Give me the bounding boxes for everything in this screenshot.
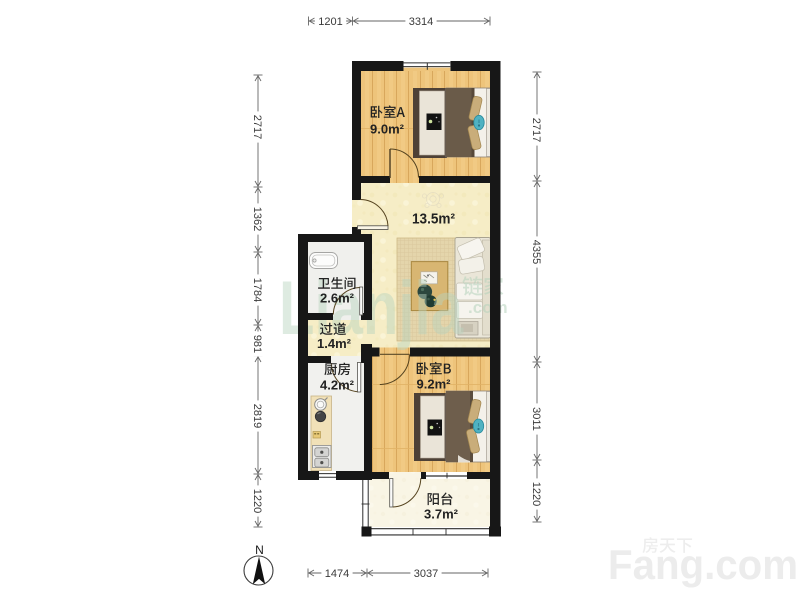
svg-text:N: N bbox=[255, 543, 264, 557]
svg-text:3037: 3037 bbox=[414, 568, 438, 580]
svg-text:13.5m²: 13.5m² bbox=[412, 212, 455, 228]
svg-text:1784: 1784 bbox=[251, 278, 263, 302]
svg-text:1362: 1362 bbox=[251, 207, 263, 231]
svg-text:3314: 3314 bbox=[409, 16, 433, 28]
svg-text:9.2m²: 9.2m² bbox=[417, 377, 452, 392]
svg-text:.com: .com bbox=[468, 298, 508, 317]
svg-text:3.7m²: 3.7m² bbox=[424, 507, 459, 522]
svg-text:2717: 2717 bbox=[530, 118, 542, 142]
svg-text:1220: 1220 bbox=[530, 482, 542, 506]
svg-text:1474: 1474 bbox=[325, 568, 349, 580]
svg-text:9.0m²: 9.0m² bbox=[370, 122, 405, 137]
svg-text:Fang.com: Fang.com bbox=[608, 541, 798, 588]
svg-text:1201: 1201 bbox=[318, 16, 342, 28]
svg-text:1.4m²: 1.4m² bbox=[317, 336, 352, 351]
svg-text:3011: 3011 bbox=[530, 407, 542, 431]
svg-text:2.6m²: 2.6m² bbox=[320, 291, 355, 306]
svg-text:1220: 1220 bbox=[251, 489, 263, 513]
svg-text:2717: 2717 bbox=[251, 115, 263, 139]
svg-text:4.2m²: 4.2m² bbox=[320, 378, 355, 393]
svg-text:4355: 4355 bbox=[530, 240, 542, 264]
svg-text:2819: 2819 bbox=[251, 404, 263, 428]
svg-text:981: 981 bbox=[251, 335, 263, 353]
